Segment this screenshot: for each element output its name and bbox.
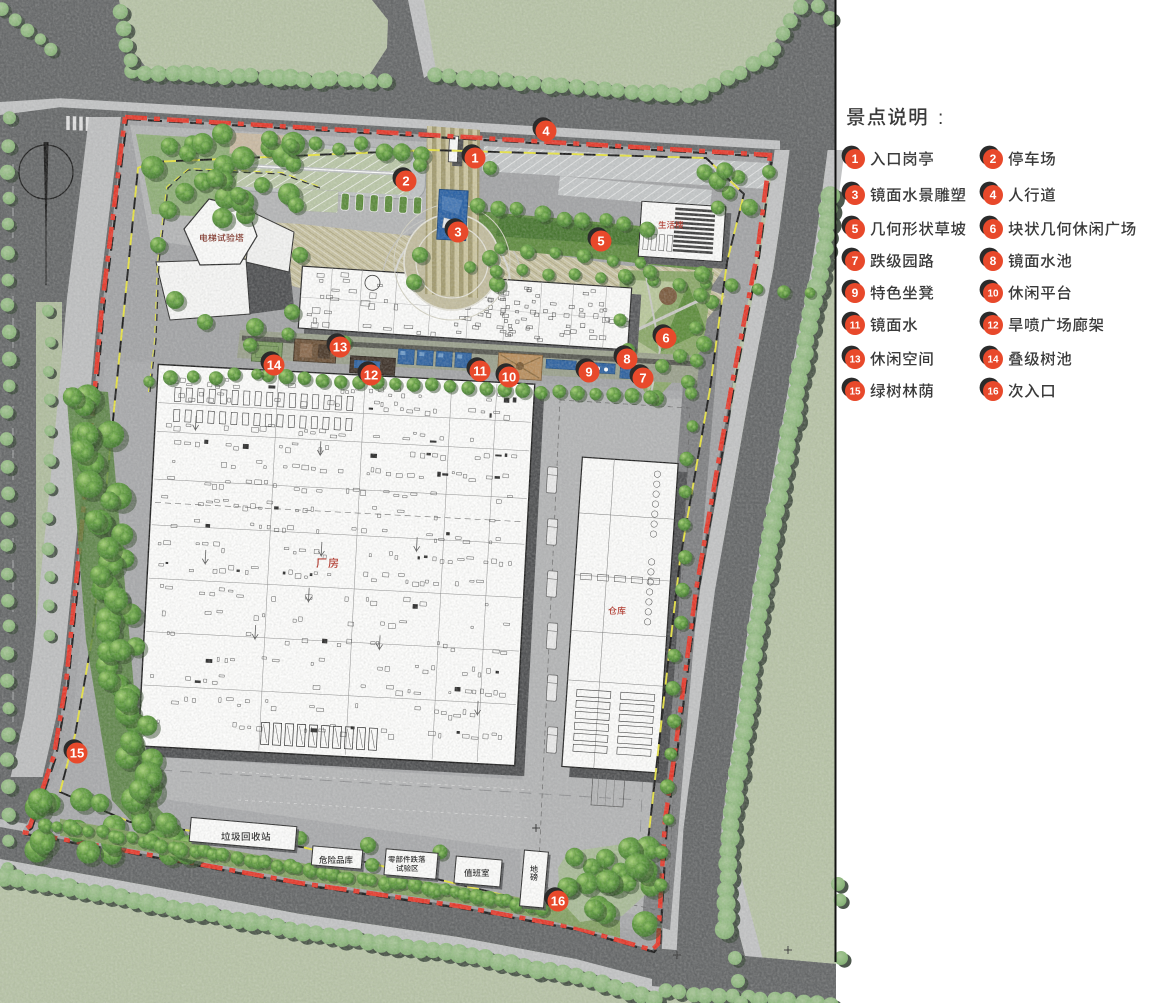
svg-text:4: 4 — [990, 188, 997, 202]
svg-text:12: 12 — [987, 321, 999, 332]
svg-text:16: 16 — [987, 387, 999, 398]
svg-text:5: 5 — [852, 222, 859, 236]
svg-text:6: 6 — [990, 222, 997, 236]
svg-text:10: 10 — [502, 370, 516, 385]
svg-text:9: 9 — [852, 286, 859, 300]
svg-text:15: 15 — [70, 746, 84, 761]
svg-text:11: 11 — [473, 364, 487, 379]
svg-text:2: 2 — [402, 174, 409, 189]
svg-text:8: 8 — [990, 254, 997, 268]
svg-text::: : — [938, 108, 943, 129]
svg-text:1: 1 — [852, 152, 859, 166]
svg-text:4: 4 — [542, 124, 550, 139]
svg-text:14: 14 — [987, 355, 999, 366]
svg-text:1: 1 — [471, 151, 478, 166]
svg-text:14: 14 — [267, 358, 282, 373]
svg-text:12: 12 — [364, 368, 378, 383]
svg-text:3: 3 — [454, 225, 461, 240]
svg-text:9: 9 — [585, 365, 592, 380]
svg-text:13: 13 — [333, 340, 347, 355]
svg-text:13: 13 — [849, 355, 861, 366]
svg-text:8: 8 — [623, 352, 630, 367]
svg-text:2: 2 — [990, 152, 997, 166]
svg-text:7: 7 — [639, 371, 646, 386]
svg-text:16: 16 — [551, 894, 565, 909]
svg-text:10: 10 — [987, 289, 999, 300]
svg-text:5: 5 — [597, 234, 604, 249]
svg-text:15: 15 — [849, 387, 861, 398]
svg-text:6: 6 — [662, 331, 669, 346]
svg-text:7: 7 — [852, 254, 859, 268]
svg-text:3: 3 — [852, 188, 859, 202]
svg-text:11: 11 — [850, 321, 861, 332]
